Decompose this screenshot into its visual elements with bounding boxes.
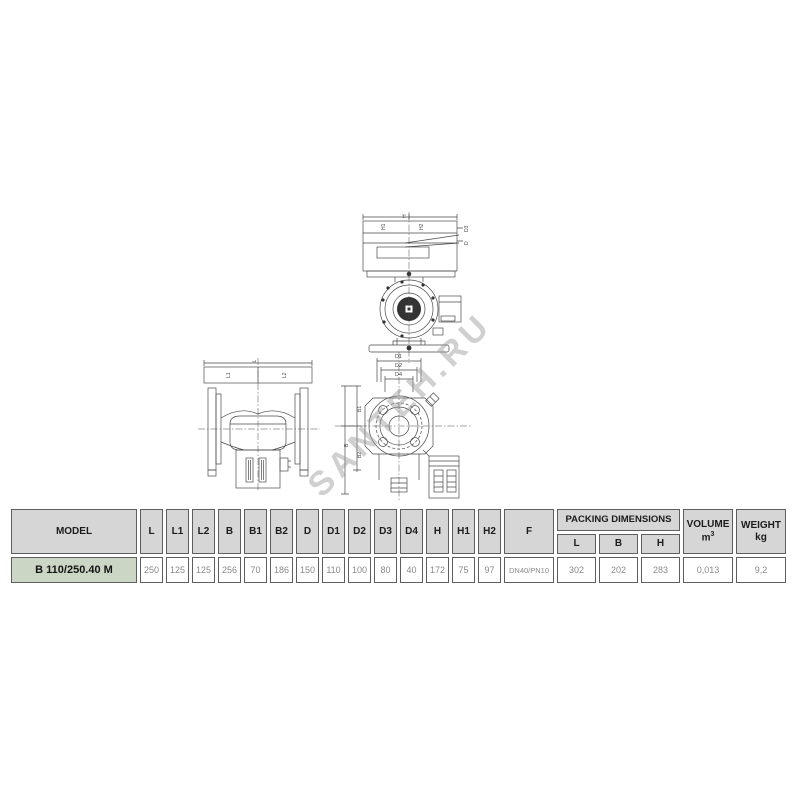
value-F: DN40/PN10	[504, 557, 554, 583]
value-packing-L: 302	[557, 557, 596, 583]
dim-label: D1	[395, 354, 402, 360]
dim-label: D2	[395, 363, 402, 369]
header-D2: D2	[348, 509, 371, 554]
dim-label: D4	[395, 372, 402, 378]
value-weight: 9,2	[736, 557, 786, 583]
value-volume: 0,013	[683, 557, 733, 583]
weight-label: WEIGHT	[737, 520, 785, 532]
header-H2: H2	[478, 509, 501, 554]
header-H: H	[426, 509, 449, 554]
header-D: D	[296, 509, 319, 554]
value-H: 172	[426, 557, 449, 583]
header-volume: VOLUME m3	[683, 509, 733, 554]
header-F: F	[504, 509, 554, 554]
header-H1: H1	[452, 509, 475, 554]
volume-unit: m3	[684, 531, 732, 544]
header-L2: L2	[192, 509, 215, 554]
dim-label: H1	[381, 223, 387, 230]
value-D2: 100	[348, 557, 371, 583]
volume-label: VOLUME	[684, 519, 732, 531]
pump-flange-view-drawing: D1 D2 D4 B1 B B2	[335, 352, 471, 504]
dim-label: D	[464, 241, 470, 245]
value-H1: 75	[452, 557, 475, 583]
header-weight: WEIGHT kg	[736, 509, 786, 554]
header-D4: D4	[400, 509, 423, 554]
header-packing-dimensions: PACKING DIMENSIONS	[557, 509, 680, 531]
dim-label: L2	[282, 372, 288, 378]
dimension-table: MODEL L L1 L2 B B1 B2 D D1 D2 D3 D4 H H1…	[8, 506, 789, 586]
header-D3: D3	[374, 509, 397, 554]
value-D1: 110	[322, 557, 345, 583]
value-D3: 80	[374, 557, 397, 583]
dim-label: H2	[419, 223, 425, 230]
value-D4: 40	[400, 557, 423, 583]
value-L: 250	[140, 557, 163, 583]
header-B: B	[218, 509, 241, 554]
dim-label: B2	[357, 452, 363, 458]
header-L: L	[140, 509, 163, 554]
dim-label: L1	[226, 372, 232, 378]
value-B2: 186	[270, 557, 293, 583]
dim-label: D3	[464, 225, 470, 232]
header-packing-B: B	[599, 534, 638, 554]
value-B: 256	[218, 557, 241, 583]
header-model: MODEL	[11, 509, 137, 554]
header-B1: B1	[244, 509, 267, 554]
header-packing-H: H	[641, 534, 680, 554]
dim-label: L	[252, 360, 258, 363]
header-packing-L: L	[557, 534, 596, 554]
value-B1: 70	[244, 557, 267, 583]
weight-unit: kg	[737, 532, 785, 544]
table-row: B 110/250.40 M 250 125 125 256 70 186 15…	[11, 557, 786, 583]
value-packing-B: 202	[599, 557, 638, 583]
value-packing-H: 283	[641, 557, 680, 583]
value-L1: 125	[166, 557, 189, 583]
header-L1: L1	[166, 509, 189, 554]
value-H2: 97	[478, 557, 501, 583]
header-D1: D1	[322, 509, 345, 554]
header-B2: B2	[270, 509, 293, 554]
model-cell: B 110/250.40 M	[11, 557, 137, 583]
pump-side-view-drawing: L L1 L2	[196, 358, 322, 492]
dim-label: B1	[357, 406, 363, 412]
dim-label: H	[402, 214, 408, 218]
value-L2: 125	[192, 557, 215, 583]
pump-front-elevation-drawing: H H1 H2 D3 D	[347, 212, 475, 364]
value-D: 150	[296, 557, 319, 583]
